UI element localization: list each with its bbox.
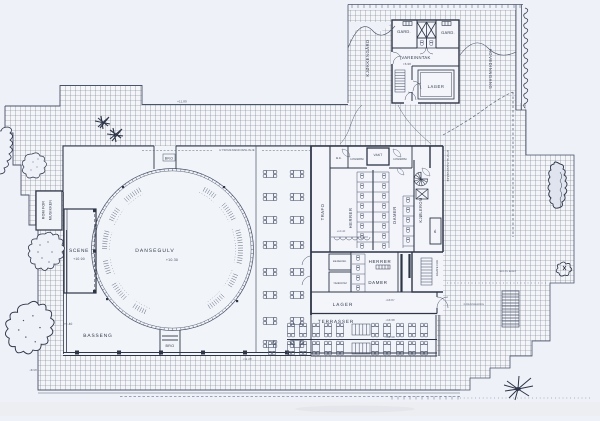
svg-text:GARD.: GARD. bbox=[441, 30, 455, 35]
svg-text:+10.90: +10.90 bbox=[73, 257, 85, 261]
svg-text:+9.40: +9.40 bbox=[63, 322, 72, 326]
svg-text:ØL: ØL bbox=[433, 229, 437, 233]
svg-text:HERRER: HERRER bbox=[369, 259, 392, 264]
svg-text:HERRER: HERRER bbox=[348, 208, 353, 229]
svg-text:DANSEGULV: DANSEGULV bbox=[135, 248, 174, 254]
svg-text:B.K.: B.K. bbox=[336, 156, 342, 160]
svg-text:MUSIKKEN: MUSIKKEN bbox=[49, 200, 53, 221]
svg-text:+10.30: +10.30 bbox=[166, 258, 178, 262]
svg-text:BRO: BRO bbox=[165, 157, 174, 161]
svg-text:ROM FOR: ROM FOR bbox=[42, 201, 46, 220]
svg-text:BEREDSK.: BEREDSK. bbox=[333, 260, 347, 263]
svg-text:GARD.: GARD. bbox=[397, 29, 411, 34]
svg-text:TANKROM: TANKROM bbox=[333, 282, 346, 285]
svg-text:HOVEDINNGANG: HOVEDINNGANG bbox=[488, 49, 493, 89]
svg-text:SCENE: SCENE bbox=[69, 248, 89, 254]
svg-text:RAMPE FOR: RAMPE FOR bbox=[436, 260, 439, 276]
svg-text:DAMER: DAMER bbox=[368, 280, 387, 285]
svg-text:NED TIL BADET: NED TIL BADET bbox=[500, 270, 517, 273]
svg-text:FORROM: FORROM bbox=[350, 157, 364, 161]
svg-text:BRO: BRO bbox=[166, 344, 175, 348]
svg-text:UTSTILLINGSOMRÅDE: UTSTILLINGSOMRÅDE bbox=[446, 150, 450, 182]
svg-text:VAKT: VAKT bbox=[374, 153, 383, 157]
svg-text:BASSENG: BASSENG bbox=[83, 333, 113, 339]
svg-text:FORROM: FORROM bbox=[393, 157, 407, 161]
svg-text:TRAFO: TRAFO bbox=[320, 203, 325, 220]
svg-text:+10.30: +10.30 bbox=[385, 318, 395, 322]
svg-text:VAREINNTAK: VAREINNTAK bbox=[401, 55, 430, 60]
svg-text:DAMER: DAMER bbox=[392, 206, 397, 224]
svg-text:+10.90: +10.90 bbox=[385, 335, 395, 339]
svg-text:LAGER: LAGER bbox=[428, 84, 445, 89]
svg-text:+10.07: +10.07 bbox=[385, 298, 395, 302]
svg-text:KJØLEROM: KJØLEROM bbox=[418, 197, 423, 222]
svg-text:+11.20: +11.20 bbox=[242, 357, 251, 361]
svg-text:KJØKKENGÅRD: KJØKKENGÅRD bbox=[365, 39, 370, 76]
svg-text:+6.90: +6.90 bbox=[403, 62, 411, 66]
svg-text:+11.80: +11.80 bbox=[177, 100, 187, 104]
svg-text:LAGER: LAGER bbox=[333, 302, 354, 307]
svg-text:UTSPRENGNINGSLINJE: UTSPRENGNINGSLINJE bbox=[219, 148, 255, 152]
svg-text:+8.50: +8.50 bbox=[29, 368, 37, 372]
svg-text:TERRASSER: TERRASSER bbox=[318, 319, 354, 324]
svg-text:GRESSBAKKE: GRESSBAKKE bbox=[464, 303, 485, 306]
svg-text:+10.30: +10.30 bbox=[337, 230, 346, 233]
